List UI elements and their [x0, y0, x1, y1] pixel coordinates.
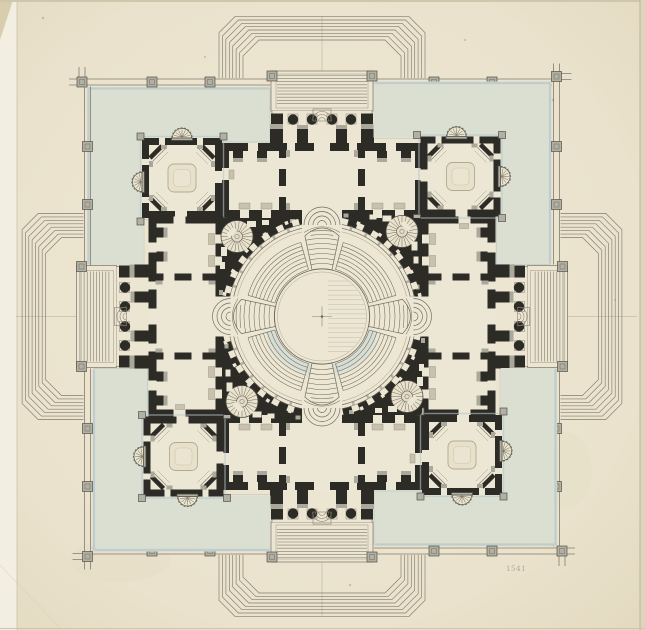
rotunda-inner-circle	[275, 269, 370, 364]
architectural-plan-drawing: 1541	[0, 0, 645, 630]
inscription: 1541	[506, 565, 526, 573]
paper-backing-strip	[0, 0, 17, 630]
drawing-sheet: 1541	[0, 0, 645, 630]
